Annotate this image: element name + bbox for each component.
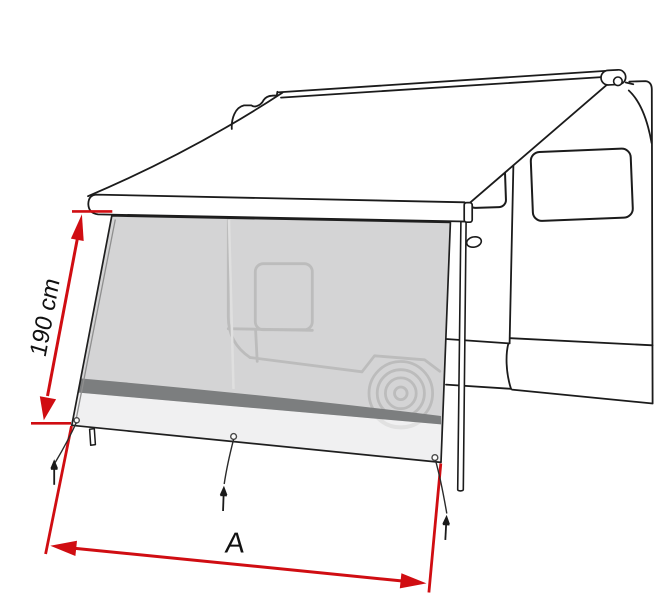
- svg-text:A: A: [224, 528, 247, 560]
